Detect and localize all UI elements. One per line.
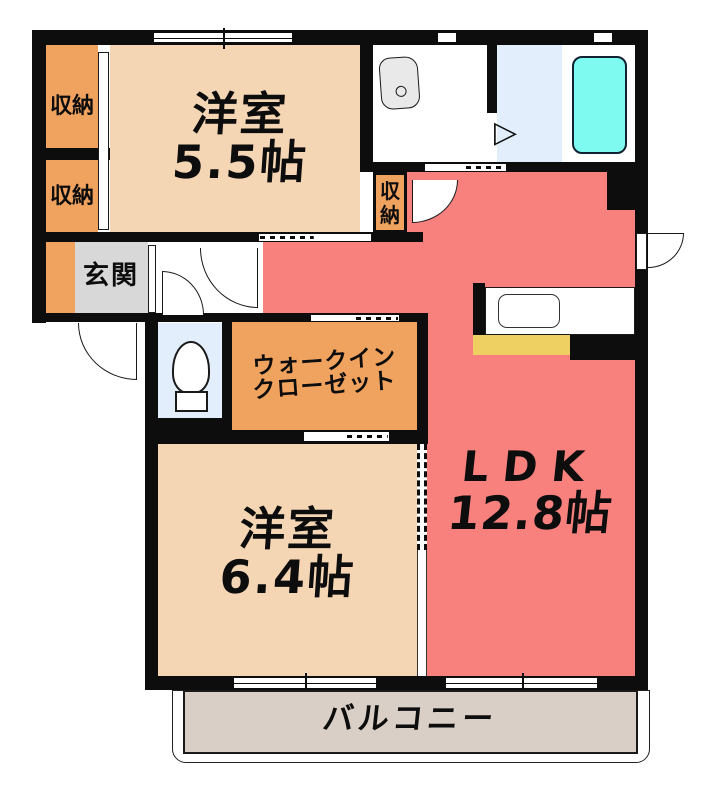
entrance-door-swing [78,323,137,380]
vent-bathroom [593,32,613,43]
storage-hall-box: 収 納 [373,172,407,233]
ldk-side-door-swing [648,233,684,268]
wash-basin-icon [378,56,421,111]
kitchen-sink-icon [498,294,560,328]
wall-bedroomA-washroom [360,30,373,172]
window-bedroomB-balcony [233,677,377,689]
wall-kitchen-block [570,335,648,360]
wall-left-lower [145,313,158,690]
window-ldk-balcony [445,677,598,689]
wall-toilet-south [145,418,232,430]
wall-bath-corner-block [607,162,648,210]
sliding-door-wic-north [310,314,400,322]
bedroom-b-label: 洋室 6.4帖 [160,505,415,602]
storage-top-label: 収納 [42,95,102,118]
ldk-side-door-leaf [636,233,647,270]
window-bedroomA [153,32,293,43]
wall-toilet-right [222,313,232,430]
floor-plan: ▷ 収 納 収納 収納 洋室 5.5帖 玄関 ウォークイン クローゼット 洋室 … [0,0,714,795]
wall-top [32,30,648,45]
sliding-door-wic-south [303,431,390,442]
partition-bedroomB-ldk-open [417,550,427,676]
wall-left-upper [32,30,46,323]
bedroom-a-label: 洋室 5.5帖 [120,90,360,187]
bathtub-icon [572,56,627,154]
ldk-label: LDK 12.8帖 [425,445,635,537]
kitchen-counter-edge [473,335,570,355]
storage-hall-label: 収 納 [380,179,400,227]
sliding-door-bedroomA [258,233,372,242]
bathroom-folding-door-icon: ▷ [494,118,517,148]
sliding-door-washroom [424,163,507,172]
toilet-door-swing [162,271,204,315]
wall-right [635,30,648,690]
walk-in-closet-label: ウォークイン クローゼット [237,350,412,398]
storage-bottom-label: 収納 [42,185,102,208]
wall-kitchen-stub [473,283,485,338]
wall-wic-right [417,313,428,443]
hallway-door-swing [200,248,258,308]
toilet-tank-icon [175,391,208,412]
entrance-label: 玄関 [70,263,152,290]
vent-washroom [437,32,457,43]
toilet-bowl-icon [172,341,210,394]
balcony-label: バルコニー [243,703,576,736]
